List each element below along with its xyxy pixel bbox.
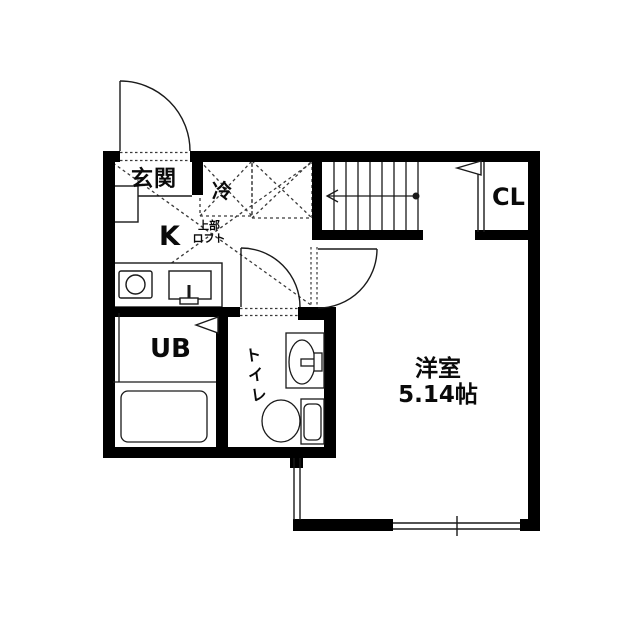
kitchen-label: K (159, 221, 180, 252)
main-room-size: 5.14帖 (362, 382, 514, 408)
loft-label-line2: ロフト (190, 233, 228, 246)
unit-bath-area (113, 313, 218, 442)
folding-door-triangle-icon (196, 317, 218, 333)
floorplan-page: 玄関 冷 K 上部 ロフト CL UB トイレ 洋室 5.14帖 (0, 0, 640, 639)
closet-door-icon (457, 161, 484, 232)
stairs (327, 162, 420, 230)
toilet-fixtures (262, 333, 324, 444)
faucet-base-icon (180, 298, 198, 304)
washbasin-icon (286, 333, 324, 388)
main-room-door-icon (311, 247, 377, 308)
sliding-window-south-icon (393, 516, 520, 536)
toilet-icon (262, 399, 324, 444)
folding-door-triangle-icon (457, 161, 481, 175)
closet-label: CL (492, 183, 525, 211)
unit-bath-label: UB (150, 334, 191, 364)
entrance-label: 玄関 (131, 161, 177, 193)
toilet-door-icon (240, 248, 300, 318)
main-room-name: 洋室 (362, 356, 514, 382)
main-room-label: 洋室 5.14帖 (362, 356, 514, 408)
loft-label: 上部 ロフト (190, 220, 228, 245)
kitchen-counter (113, 263, 222, 307)
floorplan-drawing (0, 0, 640, 639)
loft-label-line1: 上部 (190, 220, 228, 233)
refrigerator-label: 冷 (212, 175, 232, 204)
entrance-door-icon (120, 81, 190, 162)
bathtub-icon (121, 391, 207, 442)
